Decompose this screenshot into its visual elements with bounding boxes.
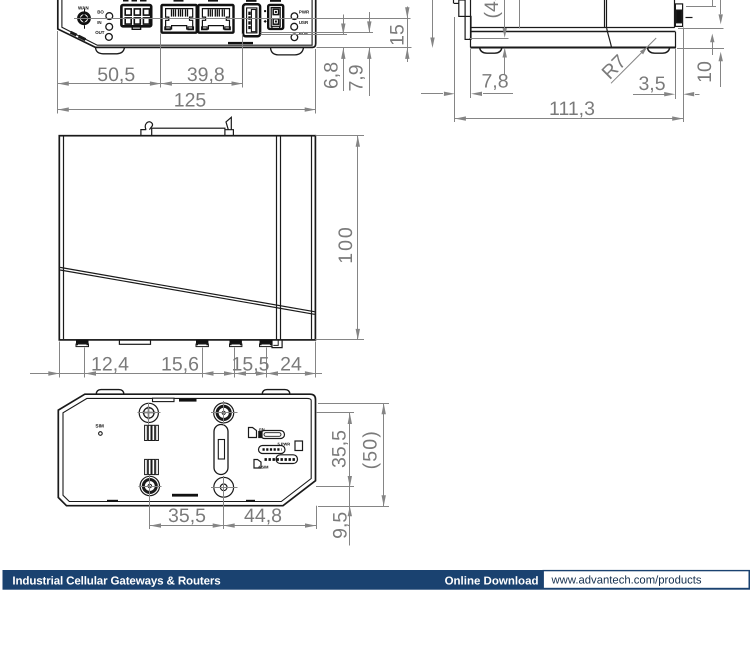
svg-text:USR: USR: [299, 20, 309, 25]
svg-text:(50): (50): [360, 430, 382, 469]
svg-text:9,5: 9,5: [329, 512, 351, 539]
svg-text:35,5: 35,5: [328, 430, 350, 468]
svg-text:PWR: PWR: [299, 9, 310, 14]
svg-text:15,5: 15,5: [232, 353, 270, 375]
svg-text:6,8: 6,8: [321, 62, 343, 89]
svg-text:10: 10: [694, 61, 716, 83]
svg-text:4 SIM: 4 SIM: [258, 464, 269, 469]
svg-text:35,5: 35,5: [168, 505, 206, 527]
svg-text:Industrial Cellular Gateways &: Industrial Cellular Gateways & Routers: [12, 574, 220, 587]
svg-text:5 PWR: 5 PWR: [278, 441, 291, 446]
svg-text:SIM: SIM: [95, 424, 104, 430]
svg-text:www.advantech.com/products: www.advantech.com/products: [551, 575, 702, 587]
svg-text:125: 125: [174, 89, 207, 111]
svg-text:BO: BO: [97, 10, 104, 15]
svg-text:GN: GN: [259, 427, 265, 432]
svg-text:15,6: 15,6: [161, 353, 199, 375]
svg-text:12,4: 12,4: [91, 353, 129, 375]
svg-text:39,8: 39,8: [187, 64, 225, 86]
svg-text:3,5: 3,5: [638, 73, 665, 95]
svg-text:15: 15: [386, 24, 408, 46]
svg-text:OUT: OUT: [95, 30, 105, 35]
svg-text:7,8: 7,8: [481, 71, 508, 93]
svg-text:POE: POE: [299, 31, 308, 36]
svg-text:44,8: 44,8: [244, 505, 282, 527]
svg-text:IN: IN: [97, 20, 101, 25]
svg-text:(45): (45): [481, 0, 503, 19]
svg-text:Online Download: Online Download: [445, 575, 539, 587]
svg-text:111,3: 111,3: [549, 98, 595, 120]
svg-text:24: 24: [280, 353, 302, 375]
svg-text:WAN: WAN: [78, 5, 89, 10]
svg-text:7,9: 7,9: [346, 64, 368, 91]
svg-text:100: 100: [335, 225, 357, 264]
svg-text:50,5: 50,5: [97, 64, 135, 86]
